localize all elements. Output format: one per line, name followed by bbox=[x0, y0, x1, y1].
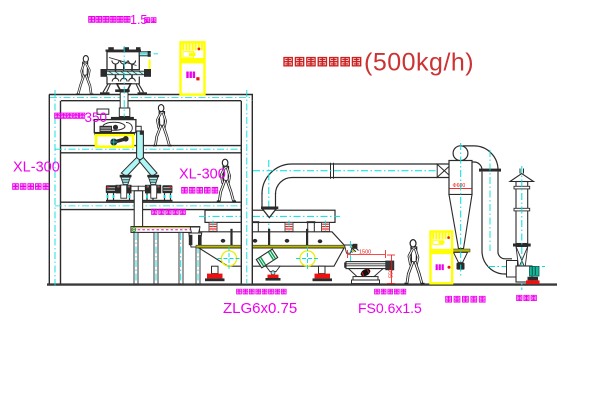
svg-text:(500kg/h): (500kg/h) bbox=[364, 49, 474, 77]
svg-text:XL-300: XL-300 bbox=[13, 160, 60, 176]
svg-text:Φ600: Φ600 bbox=[453, 183, 466, 189]
svg-text:550: 550 bbox=[388, 269, 394, 278]
svg-text:350: 350 bbox=[85, 110, 108, 125]
svg-text:XL-300: XL-300 bbox=[179, 167, 226, 183]
svg-text:FS0.6x1.5: FS0.6x1.5 bbox=[358, 300, 422, 316]
svg-text:ZLG6x0.75: ZLG6x0.75 bbox=[223, 300, 297, 317]
svg-text:1500: 1500 bbox=[359, 250, 371, 256]
